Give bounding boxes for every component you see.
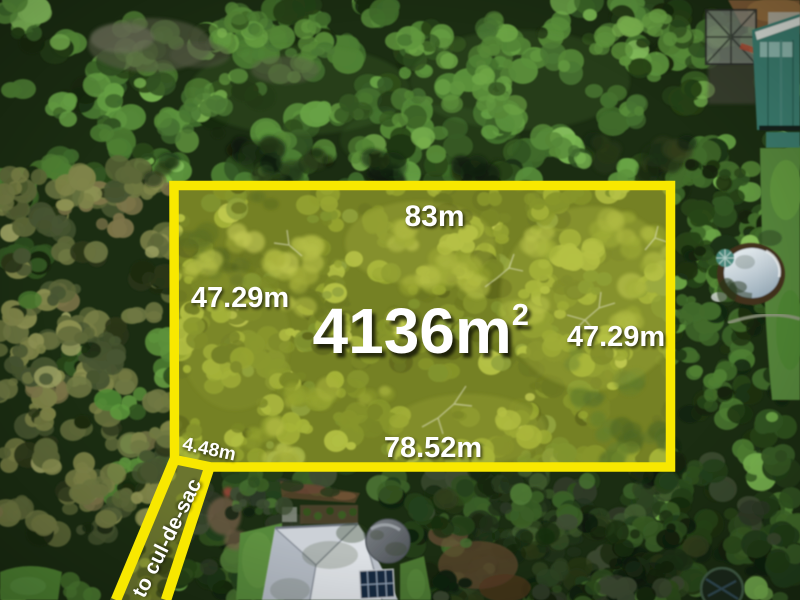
svg-text:47.29m: 47.29m [191, 282, 289, 314]
svg-text:78.52m: 78.52m [384, 432, 482, 464]
svg-text:4136m2: 4136m2 [313, 295, 530, 367]
svg-text:47.29m: 47.29m [567, 321, 665, 353]
svg-text:83m: 83m [404, 200, 464, 233]
